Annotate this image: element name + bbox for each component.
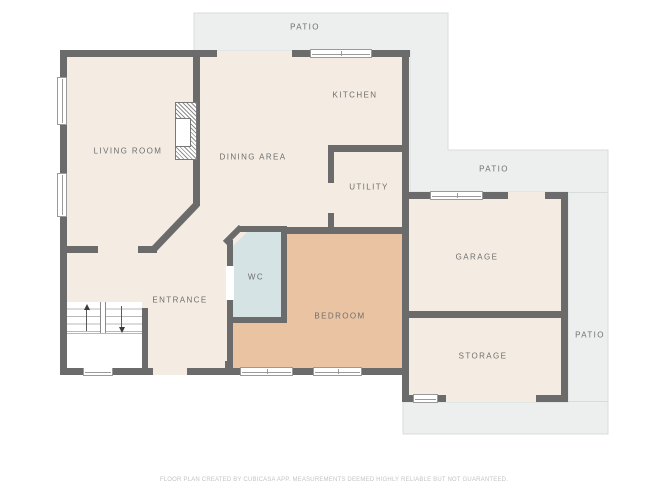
window [413,394,438,403]
wall-segment [561,192,568,402]
wall-segment [292,50,310,57]
wall-segment [293,368,313,375]
window [313,367,362,376]
window [57,173,67,217]
fireplace [175,102,197,160]
label-garage: GARAGE [456,253,499,262]
wall-segment [287,227,409,234]
stair-handrail [100,302,106,333]
stairs-up-arrow-icon [86,308,87,331]
wall-segment [402,50,409,402]
label-kitchen: KITCHEN [333,91,378,100]
wc-door [226,266,234,300]
stairs-down-arrow-icon [121,306,122,328]
fireplace-inset [175,118,191,147]
window [83,367,113,376]
label-bedroom: BEDROOM [314,312,365,321]
label-patio-right-lower: PATIO [575,331,605,340]
wall-segment [238,226,287,232]
wall-segment [154,204,197,249]
stairs-up-arrow-head-icon [84,304,90,310]
wall-segment [483,192,508,199]
wall-segment [138,246,157,253]
label-storage: STORAGE [459,352,508,361]
wall-segment [227,240,233,368]
wall-segment [403,311,568,318]
window [430,191,483,200]
label-dining-area: DINING AREA [220,153,287,162]
window [57,77,67,125]
wall-segment [187,368,240,375]
wall-segment [438,395,446,402]
label-living-room: LIVING ROOM [94,147,163,156]
wall-segment [142,308,148,375]
staircase [67,302,142,368]
sliding-door-window [310,49,372,58]
label-wc: WC [248,273,264,282]
footer-disclaimer: FLOOR PLAN CREATED BY CUBICASA APP. MEAS… [0,477,668,483]
wall-segment [328,145,334,183]
wall-segment [328,145,409,152]
floor-plan-canvas: PATIO KITCHEN LIVING ROOM DINING AREA UT… [0,0,668,501]
wall-segment [281,226,287,323]
wall-segment [227,317,287,323]
stairs-down-arrow-head-icon [119,327,125,333]
wall-segment [328,213,334,234]
window [240,367,293,376]
label-patio-right-upper: PATIO [479,165,509,174]
label-utility: UTILITY [349,183,389,192]
label-entrance: ENTRANCE [152,296,207,305]
label-patio-top: PATIO [290,23,320,32]
